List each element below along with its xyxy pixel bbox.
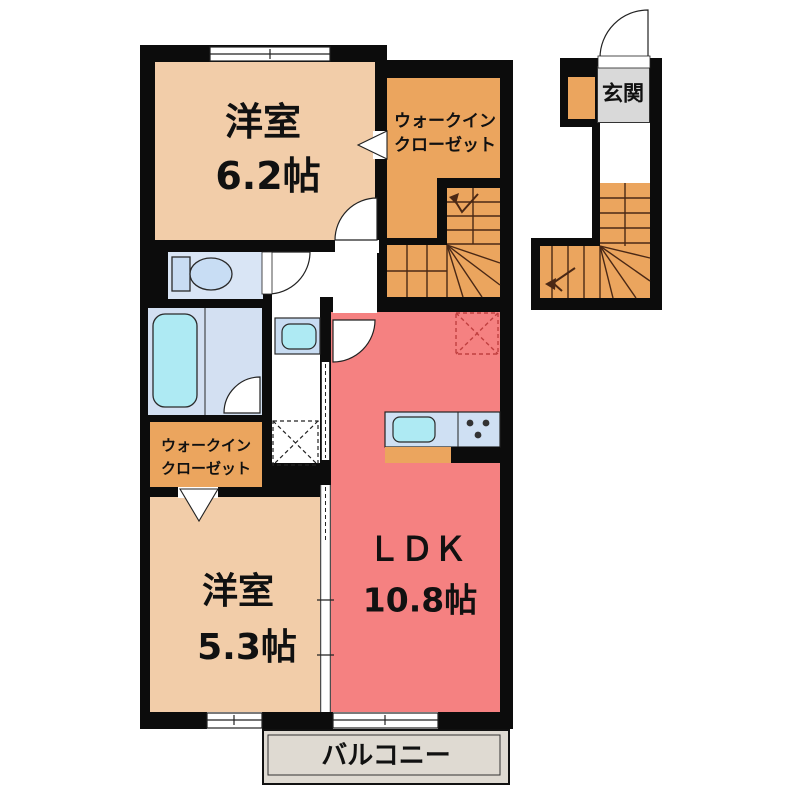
- door-wic-middle: [178, 487, 218, 521]
- sliding-door-washroom: [321, 362, 330, 460]
- label-wic-top-2: クローゼット: [394, 138, 496, 155]
- washing-machine-space-icon: [273, 421, 318, 465]
- label-wic-top-1: ウォークイン: [394, 114, 496, 131]
- window-icon-bedroom-top: [210, 47, 330, 61]
- kitchen-counter-icon: [385, 412, 500, 463]
- door-wic-top: [358, 131, 387, 159]
- label-ldk-area: 10.8帖: [363, 584, 477, 617]
- label-entrance: 玄関: [602, 84, 644, 105]
- refrigerator-space-icon: [456, 313, 498, 354]
- staircase-icon: [387, 188, 500, 297]
- label-bedroom-top: 洋室: [225, 103, 301, 141]
- door-toilet: [262, 252, 310, 294]
- door-bathroom: [224, 377, 260, 413]
- bathtub-icon: [153, 308, 205, 415]
- label-wic-middle-1: ウォークイン: [161, 439, 251, 454]
- door-bedroom-top: [335, 198, 379, 253]
- kitchen-cabinet: [385, 447, 451, 463]
- label-bedroom-bottom-area: 5.3帖: [197, 630, 297, 666]
- entry-door-icon: [598, 10, 650, 68]
- washbasin-icon: [275, 318, 320, 354]
- label-balcony: バルコニー: [321, 743, 450, 769]
- label-bedroom-top-area: 6.2帖: [215, 157, 320, 195]
- toilet-icon: [172, 257, 232, 291]
- sliding-partition-bedroom-ldk: [317, 485, 334, 712]
- window-icon-ldk: [333, 713, 438, 728]
- label-ldk: ＬＤＫ: [368, 533, 467, 566]
- label-wic-middle-2: クローゼット: [161, 462, 251, 477]
- floor-plan: 洋室 6.2帖 ウォークイン クローゼット 玄関 ウォークイン クローゼット 洋…: [0, 0, 800, 795]
- entry-staircase-icon: [552, 183, 650, 298]
- kitchen-wall: [451, 447, 500, 463]
- entry-staircase-arrow-icon: [545, 268, 575, 291]
- label-bedroom-bottom: 洋室: [202, 574, 274, 610]
- door-ldk: [333, 297, 377, 362]
- window-icon-bedroom-bottom: [207, 713, 262, 728]
- kitchen-sink-icon: [393, 417, 435, 442]
